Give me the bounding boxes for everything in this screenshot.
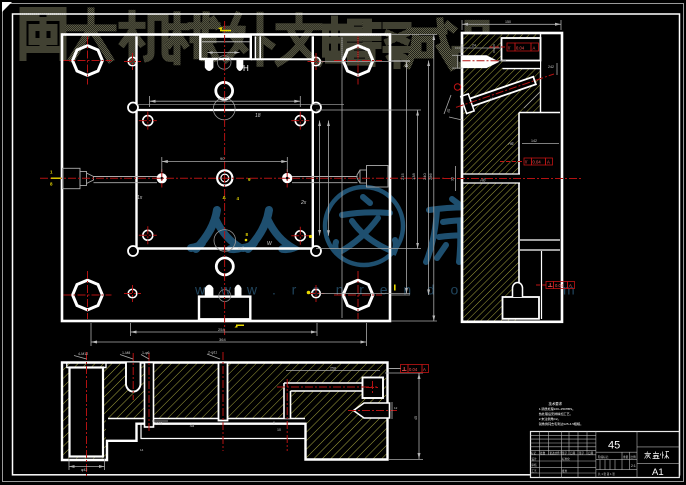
svg-text:签字: 签字 <box>562 451 568 455</box>
svg-text:阶段标记: 阶段标记 <box>598 455 609 459</box>
svg-text:364: 364 <box>219 337 226 342</box>
svg-text:35: 35 <box>451 177 455 181</box>
svg-text:4-M12: 4-M12 <box>78 352 88 356</box>
svg-text:日期: 日期 <box>570 451 576 455</box>
svg-text:重量: 重量 <box>623 455 629 459</box>
svg-text:设计: 设计 <box>532 457 538 461</box>
svg-text:1.调质处理220~250HBS。: 1.调质处理220~250HBS。 <box>539 406 576 411</box>
svg-text:H: H <box>243 64 249 73</box>
svg-text:2.未注倒角C2。: 2.未注倒角C2。 <box>539 416 561 421</box>
svg-text:1-M8: 1-M8 <box>122 351 130 355</box>
svg-text:24: 24 <box>472 44 476 48</box>
svg-text:A: A <box>533 46 536 51</box>
svg-text:φ42: φ42 <box>81 468 87 472</box>
svg-text:共 1 张 第 1 张: 共 1 张 第 1 张 <box>598 472 615 476</box>
svg-text:1x: 1x <box>137 195 143 201</box>
svg-text:0.04: 0.04 <box>533 160 542 165</box>
svg-text:215: 215 <box>400 173 405 180</box>
svg-text:45: 45 <box>414 416 418 420</box>
svg-text:2x: 2x <box>300 200 307 206</box>
svg-text:286: 286 <box>428 173 433 180</box>
svg-text:标准化: 标准化 <box>562 457 570 461</box>
svg-text:A: A <box>547 160 550 165</box>
svg-text:240: 240 <box>422 173 427 180</box>
svg-text:90: 90 <box>220 156 225 161</box>
svg-text:A1: A1 <box>652 467 664 478</box>
svg-text:152: 152 <box>219 96 226 101</box>
svg-text:254: 254 <box>218 327 225 332</box>
svg-text:A: A <box>569 283 572 288</box>
svg-text:比例: 比例 <box>631 455 637 459</box>
svg-text:标记: 标记 <box>531 451 537 455</box>
svg-text:热处理后安排精加工艺。: 热处理后安排精加工艺。 <box>539 411 573 416</box>
svg-text:258: 258 <box>330 367 336 371</box>
svg-text:/B: /B <box>189 423 194 428</box>
svg-text:2-φ11: 2-φ11 <box>208 351 217 355</box>
svg-text:w/: w/ <box>238 246 244 252</box>
svg-text:12: 12 <box>394 406 398 410</box>
svg-text:签字: 签字 <box>579 451 585 455</box>
svg-text:0.04: 0.04 <box>555 283 564 288</box>
svg-text:242: 242 <box>548 65 554 69</box>
svg-text:处数: 处数 <box>540 451 546 455</box>
svg-text:1-φ6: 1-φ6 <box>142 351 150 355</box>
svg-text:批准: 批准 <box>562 469 568 473</box>
svg-text:0.04: 0.04 <box>409 367 418 372</box>
svg-text:工艺: 工艺 <box>532 469 538 473</box>
svg-text:138: 138 <box>411 173 416 180</box>
svg-text:2:1: 2:1 <box>631 464 636 468</box>
svg-text:6: 6 <box>273 421 275 425</box>
svg-text:技术要求: 技术要求 <box>549 401 563 406</box>
svg-text:A8: A8 <box>479 178 486 183</box>
svg-text:0.04: 0.04 <box>516 46 525 51</box>
svg-text:142: 142 <box>531 139 537 143</box>
svg-text:18: 18 <box>255 113 261 119</box>
svg-text:10: 10 <box>277 428 281 432</box>
svg-text:A: A <box>423 367 426 372</box>
svg-text:14: 14 <box>140 448 144 452</box>
svg-text:150: 150 <box>505 20 511 24</box>
svg-text:锐角倒钝去毛刺边125-4.5粗糙。: 锐角倒钝去毛刺边125-4.5粗糙。 <box>539 421 584 426</box>
svg-text:更改文件号: 更改文件号 <box>550 451 563 455</box>
svg-text:日期: 日期 <box>588 451 594 455</box>
svg-text:1-M8: 1-M8 <box>154 422 162 426</box>
svg-text:审核: 审核 <box>532 463 538 467</box>
svg-text:A6: A6 <box>507 141 514 146</box>
svg-text:45: 45 <box>608 440 620 452</box>
